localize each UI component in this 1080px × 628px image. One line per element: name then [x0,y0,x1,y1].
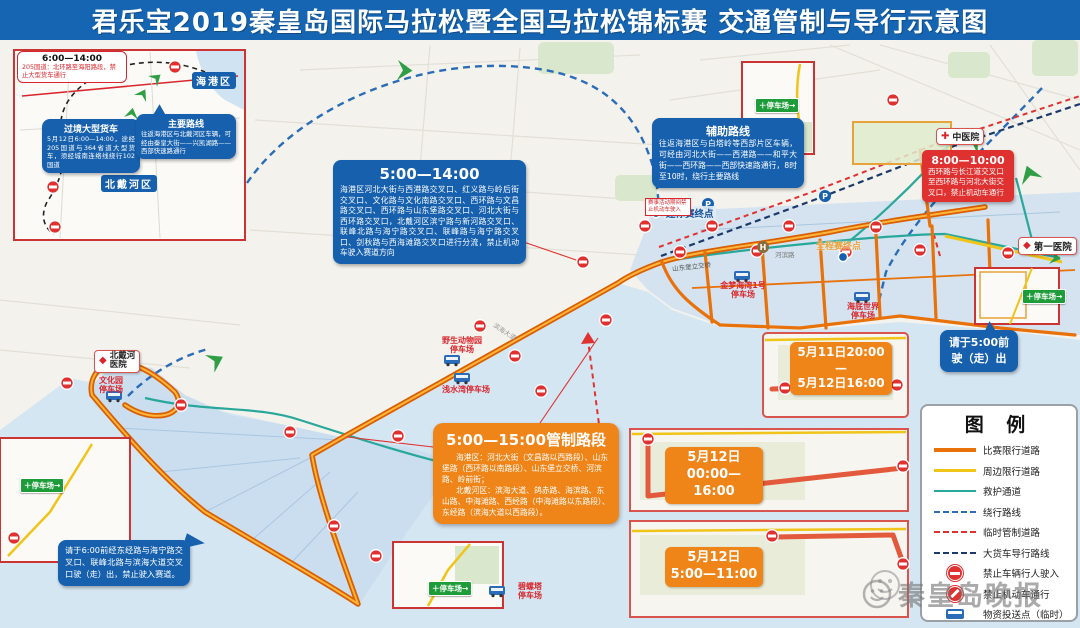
main-route-body: 往返海港区与北戴河区车辆，可经由秦皇大街——兴凯湖路——西部快速路通行 [141,130,231,156]
legend-label: 大货车导行路线 [983,546,1050,560]
callout-exit-left-body: 请于6:00前经东经路与海宁路交叉口、联峰北路与滨海大道交叉口驶（走）出，禁止驶… [65,545,183,581]
panel-may11-label: 5月11日20:00— 5月12日16:00 [790,342,892,395]
legend-label: 周边限行道路 [983,464,1040,478]
hospital-icon: ◆ [99,356,107,366]
truck-guide-dash-icon [934,552,976,554]
district-beidaihe: 北戴河区 [101,175,157,192]
inset-time: 6:00—14:00 [22,54,122,64]
aux-route-title: 辅助路线 [659,123,797,139]
truck-route-body: 5月12日6:00—14:00，途经205国道与364省道大型货车，须经城南连络… [47,135,135,170]
race-route-line-icon [934,448,976,452]
parking-label-haidi: 海底世界 停车场 [836,302,890,320]
truck-route-box: 过境大型货车 5月12日6:00—14:00，途经205国道与364省道大型货车… [42,119,140,173]
watermark-text: 秦皇岛晚报 [898,574,1043,613]
aux-route-box: 辅助路线 往返海港区与白塔岭等西部片区车辆，可经由河北大街——西港路——和平大街… [652,118,804,188]
hospital-zhongyi: ✚ 中医院 [936,128,984,145]
legend-row: 大货车导行路线 [922,543,1076,564]
callout-5-14: 5:00—14:00 海港区河北大街与西港路交叉口、红义路与岭后街交叉口、文化路… [333,160,526,264]
parking-sign: ＋停车场→ [20,478,64,493]
temp-control-dash-icon [934,531,976,533]
truck-route-title: 过境大型货车 [47,122,135,135]
inset-time-box: 6:00—14:00 205国道：北环路至海阳路段，禁止大型货车通行 [17,51,127,83]
hospital-diyi-text: 第一医院 [1034,239,1072,253]
hospital-icon: ✚ [941,132,949,142]
inset-bottomcenter [393,542,503,608]
district-haigang: 海港区 [192,72,236,89]
event-notice: 赛事活动期间禁止机动车驶入 [645,198,691,216]
parking-p-icon: P [822,192,828,201]
parking-label-wenhuayuan: 文化园 停车场 [86,376,136,394]
parking-label-zoo: 野生动物园 停车场 [432,336,492,354]
callout-tail [149,103,165,117]
parking-label-biluota: 碧螺塔 停车场 [506,582,554,600]
page-title: 君乐宝2019秦皇岛国际马拉松暨全国马拉松锦标赛 交通管制与导行示意图 [0,0,1080,40]
legend-row: 周边限行道路 [922,461,1076,482]
callout-5-14-time: 5:00—14:00 [340,165,519,183]
parking-sign: ＋停车场→ [755,98,799,113]
legend-row: 临时管制道路 [922,522,1076,543]
legend-row: 比赛限行道路 [922,440,1076,461]
detour-dash-icon [934,511,976,513]
control-title: 5:00—15:00管制路段 [442,429,610,450]
parking-label-qianshuiwan: 浅水湾停车场 [434,385,498,394]
watermark: 秦皇岛晚报 [862,574,1043,613]
legend-title: 图 例 [922,410,1076,437]
callout-8-10-body: 西环路与长江道交叉口至西环路与河北大街交叉口，禁止机动车通行 [928,167,1008,198]
main-route-box: 主要路线 往返海港区与北戴河区车辆，可经由秦皇大街——兴凯湖路——西部快速路通行 [136,114,236,159]
hospital-diyi: ◆ 第一医院 [1018,237,1077,255]
peripheral-line-icon [934,469,976,472]
newspaper-logo-icon [862,579,892,609]
parking-sign: ＋停车场→ [1022,289,1066,304]
legend-label: 比赛限行道路 [983,443,1040,457]
callout-8-10-time: 8:00—10:00 [928,154,1008,167]
legend-row: 救护通道 [922,481,1076,502]
callout-5-14-body: 海港区河北大街与西港路交叉口、红义路与岭后街交叉口、文化路与文化南路交叉口、西环… [340,185,519,259]
legend-label: 临时管制道路 [983,525,1040,539]
parking-label-jinmeng: 金梦海湾1号 停车场 [710,281,776,299]
hospital-beidaihe-text: 北戴河 医院 [110,352,136,371]
hospital-zhongyi-text: 中医院 [952,130,979,143]
legend-label: 救护通道 [983,484,1021,498]
h-icon: H [760,243,767,252]
legend-row: 绕行路线 [922,502,1076,523]
map-canvas: P P H [0,0,1080,628]
panel-may12b-label: 5月12日 5:00—11:00 [665,547,763,587]
rescue-line-icon [934,490,976,492]
inset-time-body: 205国道：北环路至海阳路段，禁止大型货车通行 [22,64,122,80]
road-label-hebinlu: 河滨路 [775,249,795,259]
hospital-icon: ◆ [1023,241,1031,251]
hospital-beidaihe: ◆ 北戴河 医院 [94,350,140,373]
main-route-title: 主要路线 [141,117,231,130]
legend-label: 绕行路线 [983,505,1021,519]
control-p2: 北戴河区：滨海大道、鸽赤路、海滨路、东山路、中海滩路、西经路（中海滩路以东路段）… [442,486,610,519]
callout-8-10: 8:00—10:00 西环路与长江道交叉口至西环路与河北大街交叉口，禁止机动车通… [922,150,1014,202]
traffic-control-map: P P H 君乐宝2019秦皇岛国际马拉松暨全国马拉松锦标赛 交通管制与导行示意… [0,0,1080,628]
parking-sign: ＋停车场→ [428,581,472,596]
panel-may12a-label: 5月12日 00:00—16:00 [665,447,763,504]
control-section-box: 5:00—15:00管制路段 海港区：河北大街（文昌路以西路段）、山东堡路（西环… [433,423,619,524]
aux-route-body: 往返海港区与白塔岭等西部片区车辆，可经由河北大街——西港路——和平大街——西环路… [659,139,797,183]
callout-exit-left: 请于6:00前经东经路与海宁路交叉口、联峰北路与滨海大道交叉口驶（走）出，禁止驶… [58,540,190,586]
finish-full: 全程赛终点 [816,239,861,252]
control-p1: 海港区：河北大街（文昌路以西路段）、山东堡路（西环路以南路段）、山东堡立交桥、河… [442,453,610,486]
callout-exit-right: 请于5:00前 驶（走）出 [940,330,1018,372]
